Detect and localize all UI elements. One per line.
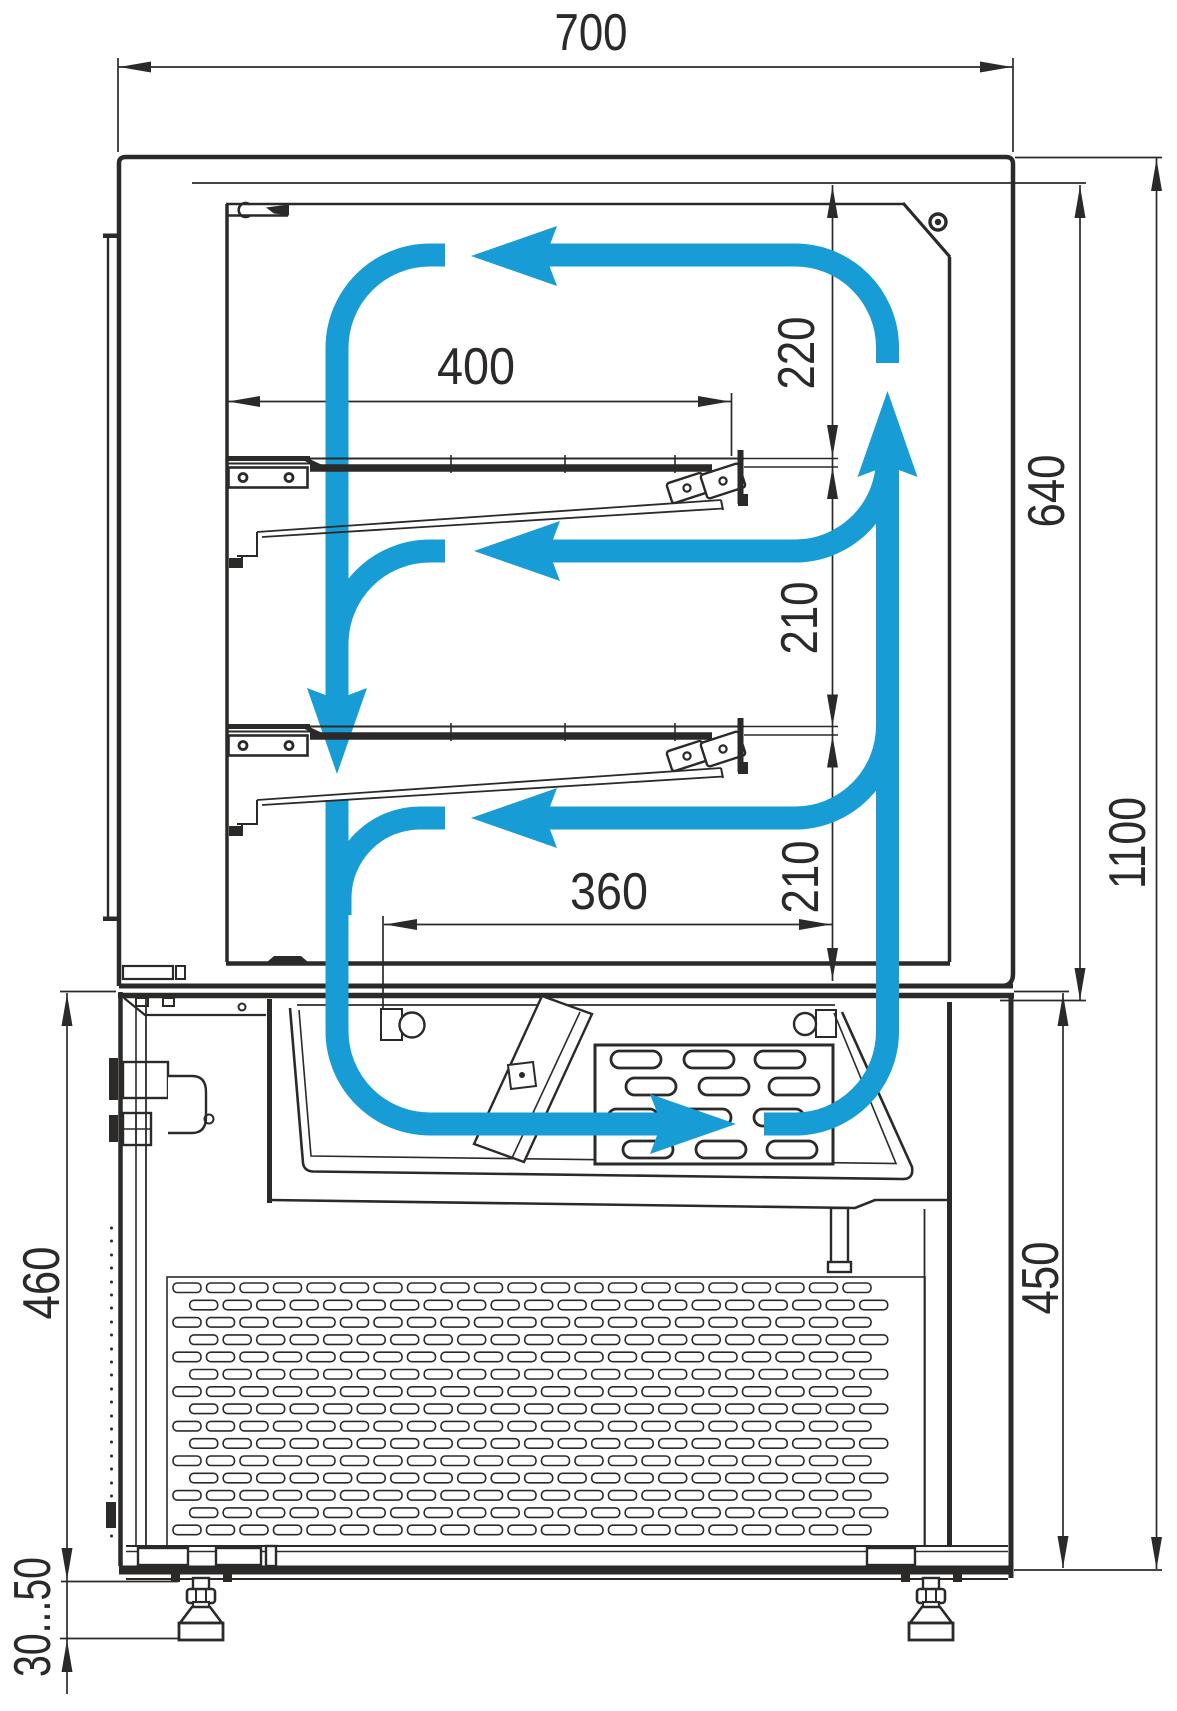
svg-text:210: 210 — [771, 582, 829, 655]
svg-text:400: 400 — [437, 338, 515, 396]
svg-text:210: 210 — [772, 841, 830, 914]
svg-text:460: 460 — [13, 1247, 71, 1320]
svg-text:360: 360 — [570, 863, 648, 921]
svg-text:1100: 1100 — [1099, 797, 1157, 889]
svg-text:30...50: 30...50 — [4, 1557, 62, 1677]
svg-text:700: 700 — [555, 4, 628, 62]
svg-text:640: 640 — [1018, 455, 1076, 528]
svg-text:220: 220 — [768, 317, 826, 390]
svg-text:450: 450 — [1012, 1242, 1070, 1315]
